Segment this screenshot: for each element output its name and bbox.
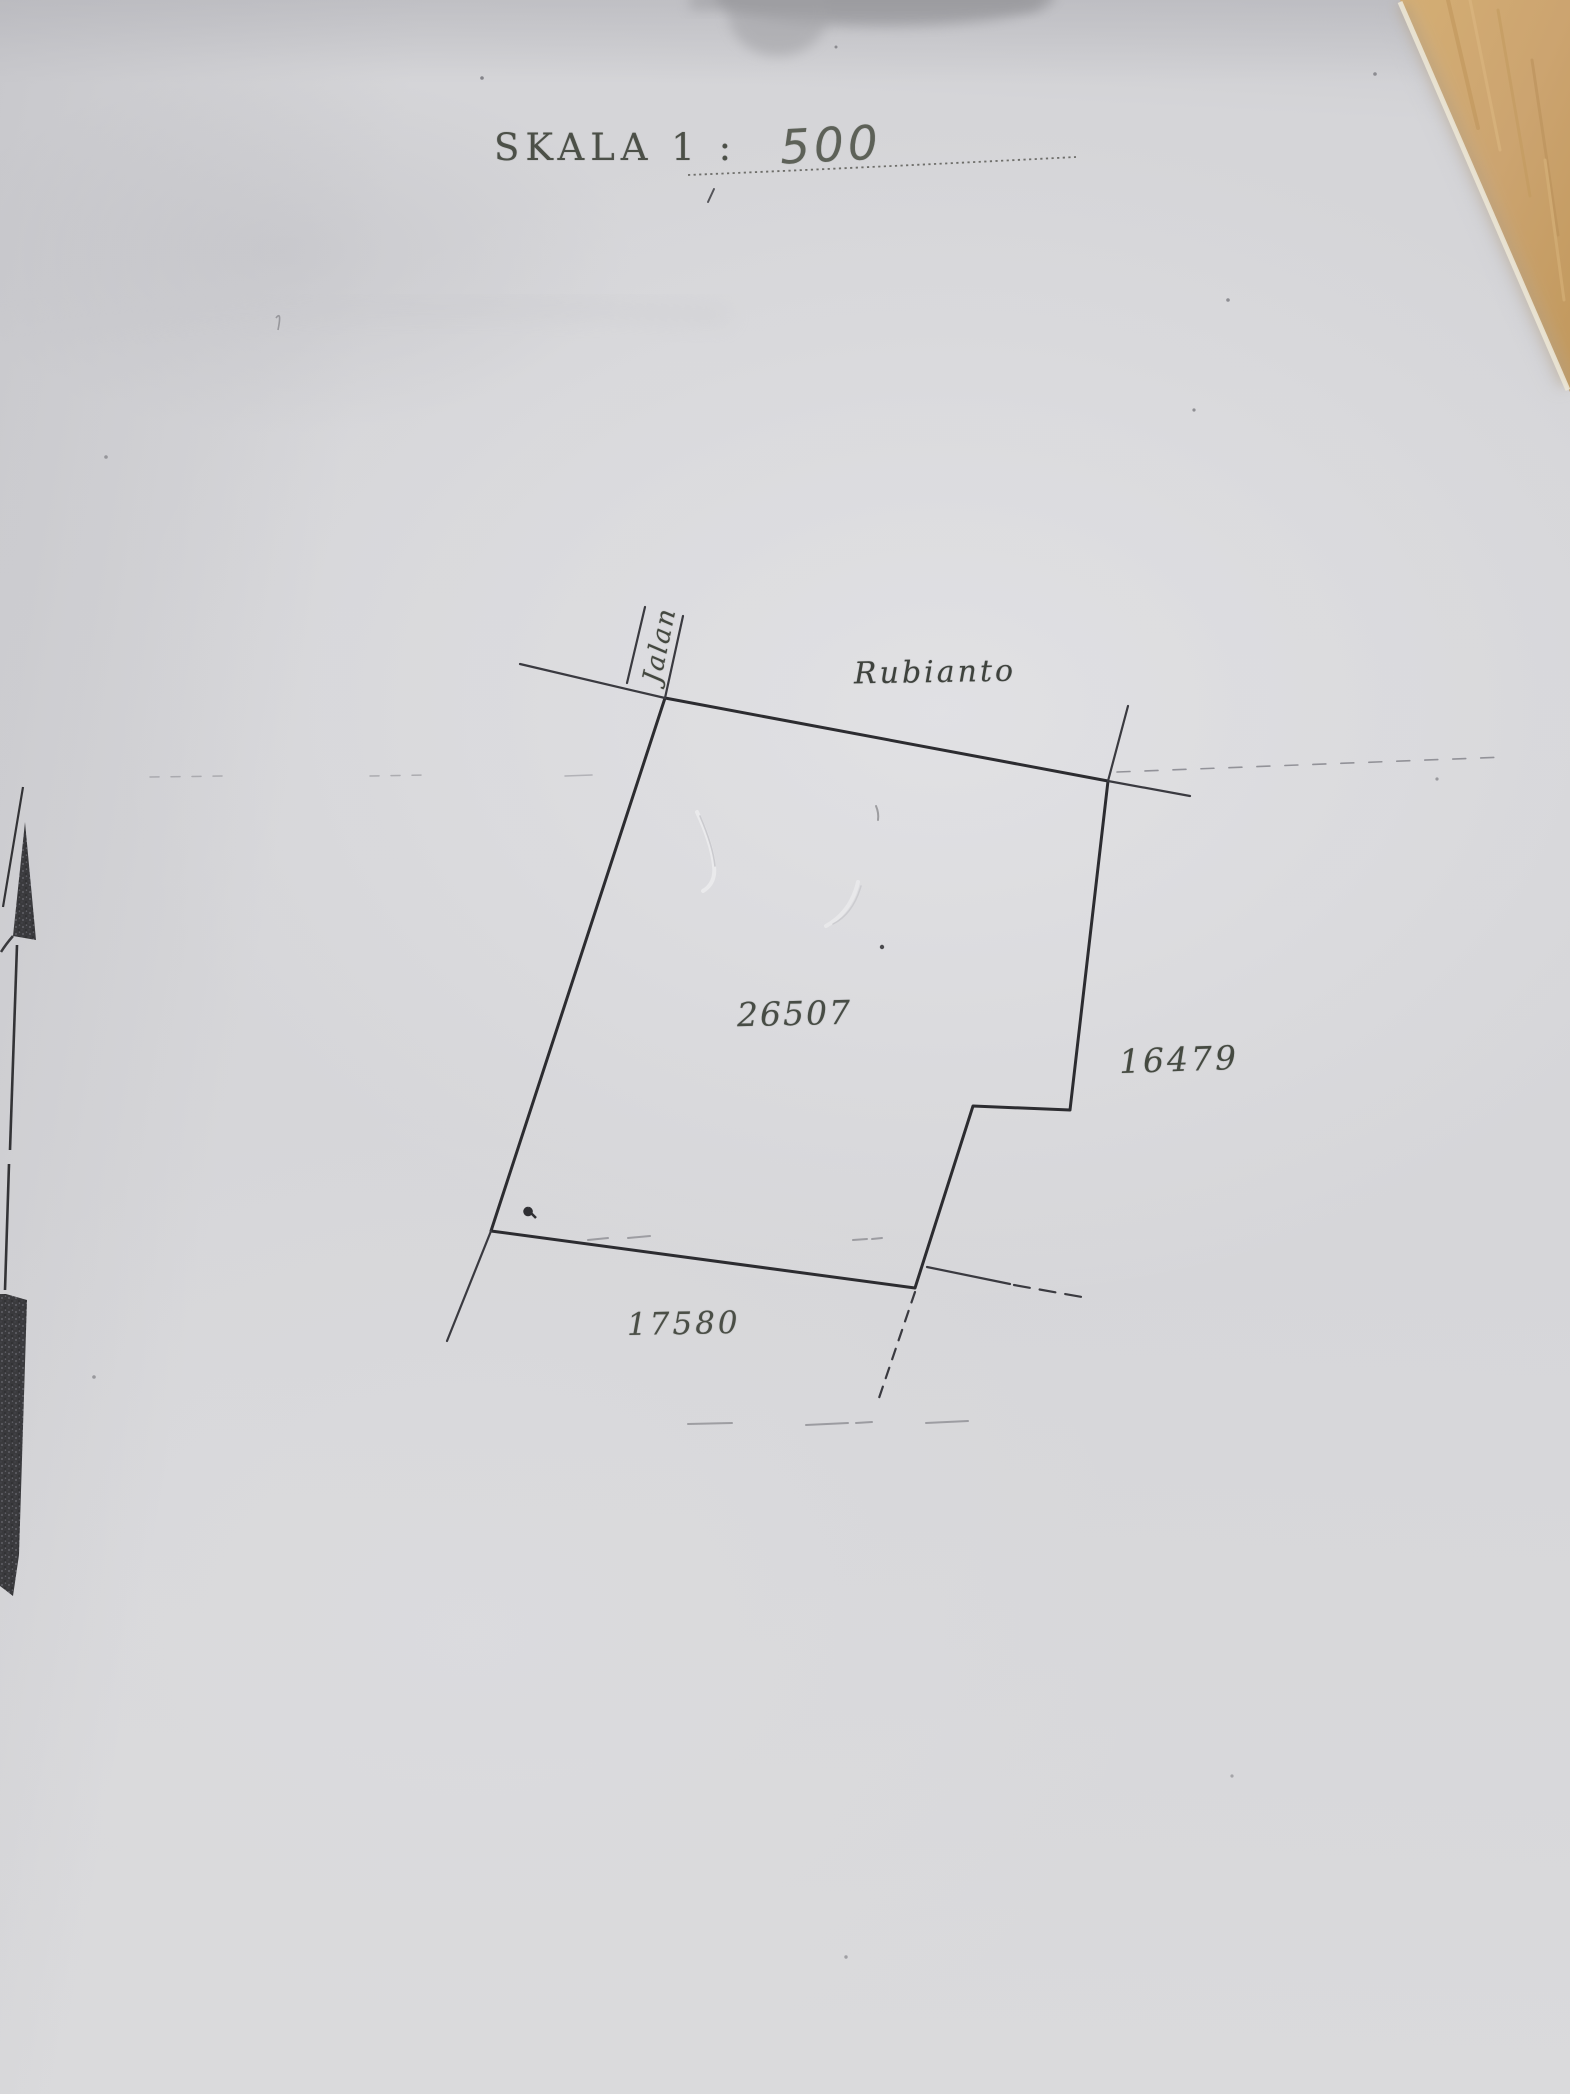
survey-drawing-canvas bbox=[0, 0, 1570, 2094]
north-arrow-icon bbox=[0, 787, 36, 1596]
faint-crease-line bbox=[150, 757, 1505, 777]
parcel-number-east: 16479 bbox=[1118, 1038, 1239, 1081]
top-edge-shadow bbox=[690, 0, 1055, 56]
tick-above-northeast-corner bbox=[1108, 706, 1128, 781]
scale-value-handwritten: 500 bbox=[779, 115, 883, 175]
parcel-number-south: 17580 bbox=[627, 1305, 741, 1343]
road-label-rubianto: Rubianto bbox=[854, 654, 1017, 692]
pen-tick-mark bbox=[708, 189, 714, 202]
south-extension-dashed bbox=[1014, 1285, 1082, 1297]
parcel-number-main: 26507 bbox=[737, 993, 853, 1034]
scanned-survey-document: SKALA 1 : 500 Jalan Rubianto 26507 16479… bbox=[0, 0, 1570, 2094]
scale-title: SKALA 1 : bbox=[494, 126, 737, 169]
survey-point-mark bbox=[525, 1208, 536, 1218]
dashed-line-below-south-corner bbox=[879, 1292, 915, 1398]
paper-wrinkles bbox=[0, 308, 878, 926]
extension-below-southwest-corner bbox=[447, 1231, 491, 1341]
south-extension-solid bbox=[927, 1267, 1010, 1284]
